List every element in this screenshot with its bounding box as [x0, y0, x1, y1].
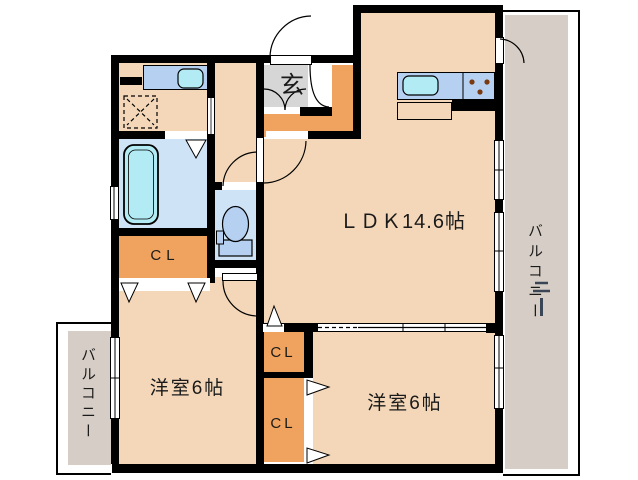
washing-machine-pan	[124, 96, 157, 128]
bathtub	[124, 145, 158, 224]
front-door-arc	[270, 16, 311, 57]
entrance-label: 玄	[277, 74, 307, 98]
shoe-closet-arc	[310, 65, 329, 107]
closet-upper-fold	[267, 306, 282, 326]
bath-closet-fold-1	[121, 283, 138, 302]
corridor-door-arc	[223, 152, 257, 186]
vanity-basin	[178, 69, 203, 88]
closet-lower-fold-2	[307, 448, 329, 463]
door-arcs	[223, 16, 524, 316]
closet-bath-label: CL	[138, 248, 192, 263]
closet-mid-lower-label: CL	[262, 416, 304, 431]
floor-plan: ＬＤＫ14.6帖 洋室6帖 洋室6帖 CL CL CL 玄 バルコニー バルコニ…	[0, 0, 638, 480]
western-room-2-label: 洋室6帖	[345, 394, 465, 413]
toilet-door-arc	[223, 281, 257, 316]
hall-door-arc	[264, 141, 306, 183]
toilet-fixture	[217, 207, 253, 257]
closet-mid-upper-label: CL	[262, 345, 304, 360]
bath-closet-fold-2	[188, 283, 205, 302]
kitchen-sink	[403, 76, 438, 95]
bath-fold-door	[186, 140, 206, 158]
sliding-partition	[318, 323, 486, 332]
balcony-right-label: バルコニー	[527, 213, 542, 333]
closet-lower-fold-1	[307, 380, 329, 395]
balcony-door-arc	[500, 39, 524, 63]
stove-burners	[469, 79, 489, 94]
ldk-label: ＬＤＫ14.6帖	[330, 212, 475, 232]
western-room-1-label: 洋室6帖	[130, 379, 245, 398]
balcony-left-label: バルコニー	[80, 338, 95, 450]
